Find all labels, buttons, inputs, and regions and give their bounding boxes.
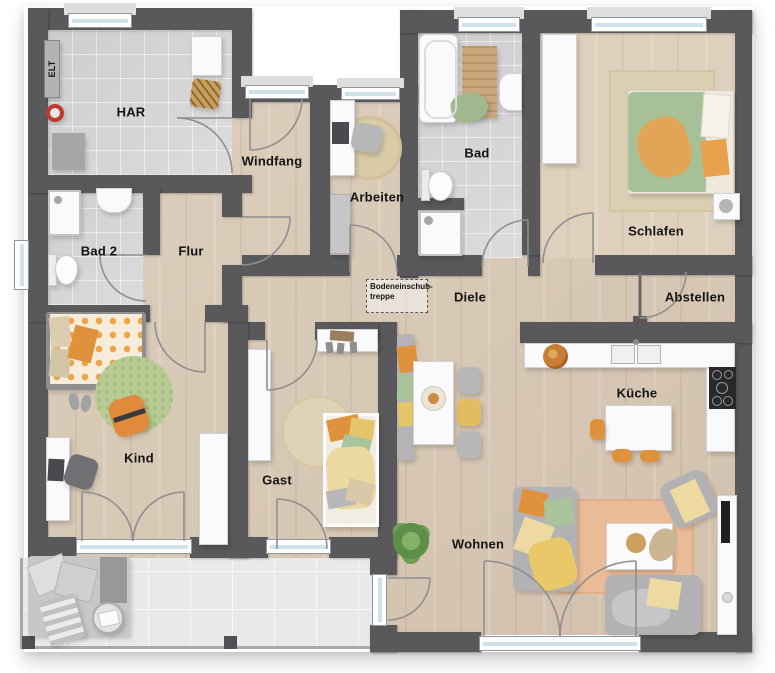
burner: [712, 396, 722, 406]
burner: [724, 370, 733, 379]
entrance-door: [245, 85, 309, 99]
window-arbeiten: [341, 87, 400, 100]
terrace-door-wohnen-french: [479, 636, 641, 651]
room-label-arbeiten: Arbeiten: [350, 190, 404, 205]
window-schlafen: [591, 17, 707, 32]
shoes: [325, 342, 333, 354]
wardrobe: [542, 34, 577, 164]
chair-gray: [457, 367, 481, 394]
room-label-flur: Flur: [178, 244, 203, 259]
shoes: [336, 343, 344, 355]
sink: [499, 73, 522, 111]
wall: [397, 255, 418, 276]
pillow-green: [543, 497, 574, 527]
window-bad: [458, 17, 520, 32]
room-label-windfang: Windfang: [242, 154, 303, 169]
flowers: [428, 393, 439, 404]
shower-head: [424, 216, 433, 225]
wall: [222, 193, 242, 217]
chair-yellow: [457, 399, 481, 426]
terrace-edge-bottom: [20, 646, 378, 649]
shoes: [350, 342, 358, 353]
wall: [522, 30, 540, 255]
room-label-schlafen: Schlafen: [628, 224, 684, 239]
room-label-gast: Gast: [262, 473, 292, 488]
office-chair: [350, 122, 384, 155]
terrace-edge-left: [20, 558, 23, 648]
cabinet: [330, 194, 351, 254]
lounger-backrest: [100, 557, 127, 603]
attic-hatch-line1: Bodeneinschub-: [370, 282, 427, 292]
room-label-abstellen: Abstellen: [665, 290, 725, 305]
wall: [205, 305, 248, 322]
wall: [228, 322, 248, 558]
wall: [329, 537, 397, 558]
wardrobe: [199, 433, 228, 545]
burner: [712, 370, 722, 380]
wall: [400, 10, 418, 278]
pillow-yellow: [646, 578, 682, 610]
wall: [639, 632, 752, 652]
chair-orange: [590, 419, 605, 440]
room-label-har: HAR: [117, 105, 146, 120]
room-label-bad: Bad: [464, 146, 489, 161]
wall: [242, 255, 350, 276]
wall: [310, 102, 330, 255]
terrace-door-kind: [76, 539, 192, 554]
floor-plan: HAR ELT Windfang Arbeiten Bad Schlafen B…: [0, 0, 775, 673]
wall: [143, 187, 160, 255]
room-label-kind: Kind: [124, 451, 154, 466]
pillow: [49, 316, 72, 348]
pillow-orange: [700, 139, 730, 178]
laptop: [332, 122, 349, 144]
terrace-post: [22, 636, 35, 649]
room-label-elt: ELT: [47, 61, 57, 78]
hose-reel: [46, 104, 64, 122]
terrace-post: [224, 636, 237, 649]
lamp: [719, 199, 733, 213]
burner: [723, 396, 733, 406]
room-label-diele: Diele: [454, 290, 486, 305]
storage-box: [52, 133, 85, 170]
attic-hatch-annotation: Bodeneinschub- treppe: [366, 279, 428, 313]
terrace-door-gast: [266, 539, 331, 554]
terrace-door-wohnen: [372, 574, 387, 626]
kitchen-sink: [611, 345, 635, 364]
window-har: [68, 13, 132, 28]
wall: [418, 255, 482, 276]
laundry-basket: [189, 78, 222, 110]
pillow: [700, 93, 731, 139]
shower-head: [54, 196, 62, 204]
tray: [626, 533, 646, 553]
kitchen-table: [605, 405, 672, 451]
decor: [722, 592, 733, 603]
attic-hatch-line2: treppe: [370, 292, 427, 302]
wall: [595, 255, 752, 275]
window-bad2: [14, 240, 29, 290]
fruit-bowl: [543, 344, 568, 369]
chair-gray: [457, 431, 481, 458]
kitchen-sink: [637, 345, 661, 364]
room-label-kueche: Küche: [617, 386, 658, 401]
wall: [370, 632, 481, 652]
room-label-wohnen: Wohnen: [452, 537, 504, 552]
wardrobe: [248, 349, 271, 461]
burner: [716, 382, 728, 394]
chair-orange: [640, 450, 660, 462]
room-label-bad2: Bad 2: [81, 244, 117, 259]
washing-machine: [191, 36, 222, 76]
bathtub-inner: [424, 40, 457, 119]
wall: [528, 255, 540, 276]
wall: [28, 537, 76, 558]
decor: [330, 330, 355, 342]
shower: [48, 190, 81, 236]
wall: [28, 8, 252, 30]
faucet: [633, 339, 639, 345]
laptop: [47, 459, 64, 482]
wall: [248, 322, 265, 340]
wall: [232, 30, 252, 118]
tv: [721, 501, 730, 543]
chair-orange: [612, 449, 632, 462]
houseplant: [392, 518, 430, 564]
